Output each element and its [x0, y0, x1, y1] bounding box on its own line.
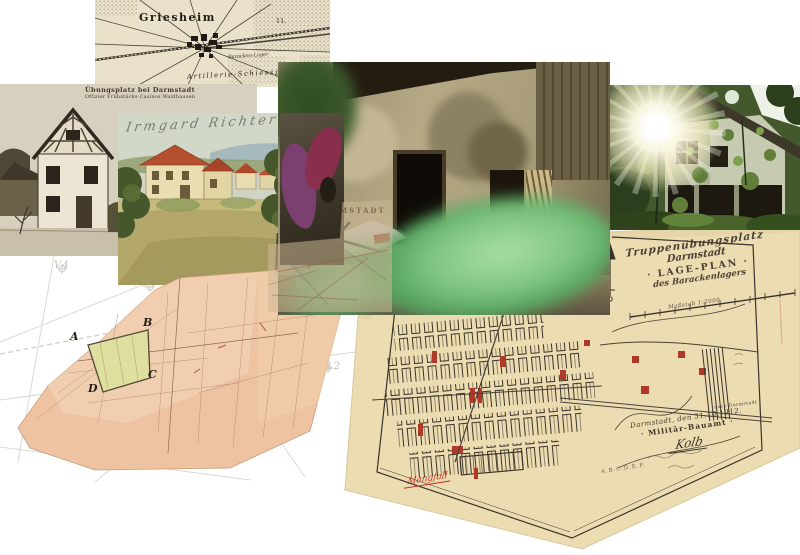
- dark-spot: [320, 177, 336, 203]
- collage-canvas: V4 V3 V12 V10 V11: [0, 0, 800, 555]
- overgrown-house-photo[interactable]: [610, 85, 800, 230]
- sun-flare: [610, 85, 726, 197]
